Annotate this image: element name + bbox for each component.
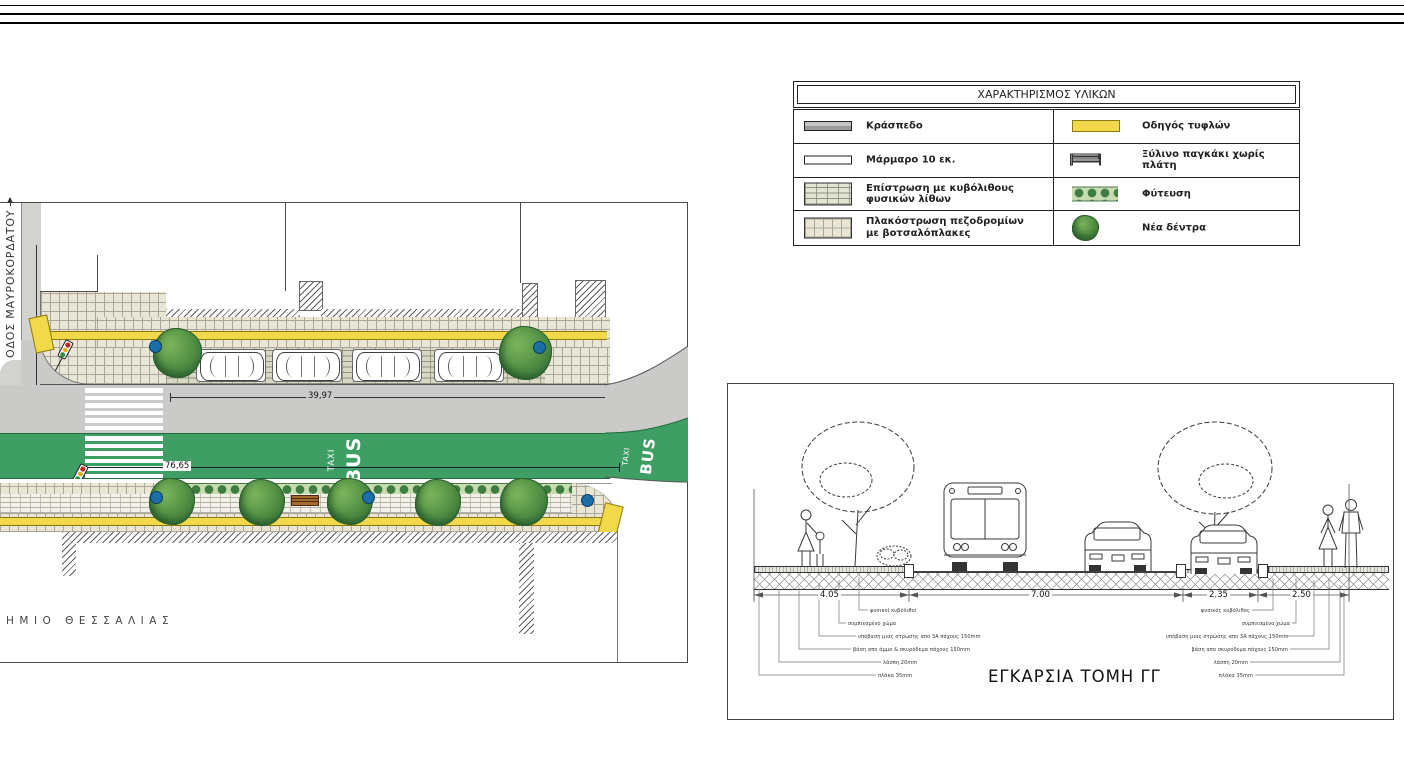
material-callout: υπόβαση μιας στρώσης απο 3Α πάχους 150mm (1166, 634, 1286, 640)
building-wall-hatch (321, 309, 528, 317)
legend-cell: Κράσπεδο (794, 110, 1054, 143)
bollard-light (149, 340, 162, 353)
parked-car (276, 352, 340, 381)
crosswalk-stripe (85, 474, 163, 479)
dim-value: 76,65 (163, 461, 191, 471)
legend-title: ΧΑΡΑΚΤΗΡΙΣΜΟΣ ΥΛΙΚΩΝ (797, 85, 1296, 104)
legend-row: Μάρμαρο 10 εκ. Ξύλινο παγκάκι χωρίς πλάτ… (794, 144, 1299, 178)
dim-value: 39,97 (306, 391, 334, 401)
street-name-label: ΟΔΟΣ ΜΑΥΡΟΚΟΡΔΑΤΟΥ (3, 198, 17, 358)
section-title: ΕΓΚΑΡΣΙΑ ΤΟΜΗ ΓΓ (988, 667, 1161, 686)
sheet-rule-2 (0, 13, 1404, 15)
parked-car (438, 352, 502, 381)
sheet-rule-1 (0, 5, 1404, 6)
material-callout: φυσικοί κυβόλιθοι (870, 608, 917, 614)
material-callout: συμπιεσμένο χώμα (848, 621, 896, 627)
material-callout: πλάκα 35mm (878, 673, 912, 679)
curb-swatch (804, 121, 852, 131)
tree (239, 479, 285, 526)
sidewalk-top-right (544, 348, 610, 384)
legend-table: Κράσπεδο Οδηγός τυφλών Μάρμαρο 10 εκ. Ξύ… (793, 109, 1300, 246)
legend-row: Πλακόστρωση πεζοδρομίων με βοτσαλόπλακες… (794, 211, 1299, 245)
crosswalk-stripe (85, 403, 163, 408)
material-callout: φυσικός κυβόλιθος (1150, 608, 1250, 614)
crosswalk-stripe (85, 388, 163, 393)
building-line (520, 203, 521, 283)
tactile-strip-swatch (1072, 120, 1120, 132)
building-line (617, 532, 618, 662)
building-wall-hatch (519, 543, 534, 634)
drawing-sheet: ΧΑΡΑΚΤΗΡΙΣΜΟΣ ΥΛΙΚΩΝ Κράσπεδο Οδηγός τυφ… (0, 0, 1404, 764)
legend-cell: Πλακόστρωση πεζοδρομίων με βοτσαλόπλακες (794, 211, 1054, 245)
bench-icon (1072, 154, 1099, 167)
street-corner-pavement (0, 360, 22, 386)
legend-label: Μάρμαρο 10 εκ. (866, 155, 956, 166)
section-view: 4.05 7.00 2.35 2.50 φυσικοί κυβόλιθοι συ… (727, 383, 1394, 720)
tree (499, 326, 552, 380)
legend-label: Επίστρωση με κυβόλιθους φυσικών λίθων (866, 183, 1053, 205)
planting-swatch (1072, 186, 1118, 201)
plan-frame-bottom (0, 662, 688, 663)
legend-label: Οδηγός τυφλών (1142, 121, 1230, 132)
dim-value: 2.35 (1207, 590, 1230, 600)
tree (153, 328, 202, 378)
material-callout: συμπιεσμένο χώμα (1190, 621, 1290, 627)
material-callout: υπόβαση μιας στρώσης απο 3Α πάχους 150mm (858, 634, 981, 640)
cobble-walkway (0, 494, 572, 513)
legend-label: Φύτευση (1142, 188, 1191, 199)
curb-line (40, 384, 610, 385)
material-callout: λάσπη 20mm (1148, 660, 1248, 666)
crosswalk-stripe (85, 451, 163, 456)
crosswalk-stripe (85, 459, 163, 464)
parked-car (356, 352, 420, 381)
legend-cell: Ξύλινο παγκάκι χωρίς πλάτη (1054, 144, 1299, 177)
legend-cell: Μάρμαρο 10 εκ. (794, 144, 1054, 177)
dim-line-parking (170, 397, 608, 398)
building-wall-hatch (62, 532, 618, 543)
tree (500, 478, 548, 526)
parked-car (200, 352, 264, 381)
building-wall-hatch (62, 532, 76, 576)
material-callout: λάσπη 20mm (883, 660, 917, 666)
cobblestone-swatch (804, 182, 852, 205)
legend-label: Πλακόστρωση πεζοδρομίων με βοτσαλόπλακες (866, 216, 1024, 240)
dim-tick (170, 393, 171, 402)
bench (291, 495, 319, 506)
dim-value: 4.05 (818, 590, 841, 600)
campus-label: ΗΜΙΟ ΘΕΣΣΑΛΙΑΣ (6, 615, 174, 627)
plan-view: ΟΔΟΣ ΜΑΥΡΟΚΟΡΔΑΤΟΥ (0, 202, 688, 663)
crosswalk-stripe (85, 426, 163, 431)
building-wall-hatch (299, 281, 323, 311)
legend-row: Επίστρωση με κυβόλιθους φυσικών λίθων Φύ… (794, 178, 1299, 212)
legend-cell: Φύτευση (1054, 178, 1299, 211)
legend-cell: Νέα δέντρα (1054, 211, 1299, 245)
bollard-light (150, 491, 163, 504)
material-callout: πλάκα 35mm (1153, 673, 1253, 679)
materials-legend: ΧΑΡΑΚΤΗΡΙΣΜΟΣ ΥΛΙΚΩΝ Κράσπεδο Οδηγός τυφ… (793, 81, 1300, 246)
crosswalk-stripe (85, 444, 163, 449)
dim-value: 2.50 (1290, 590, 1313, 600)
legend-label: Ξύλινο παγκάκι χωρίς πλάτη (1142, 149, 1299, 171)
new-tree-icon (1072, 215, 1099, 241)
legend-cell: Οδηγός τυφλών (1054, 110, 1299, 143)
taxi-lane-marking: TAXI (327, 436, 337, 484)
legend-title-box: ΧΑΡΑΚΤΗΡΙΣΜΟΣ ΥΛΙΚΩΝ (793, 81, 1300, 108)
legend-cell: Επίστρωση με κυβόλιθους φυσικών λίθων (794, 178, 1054, 211)
bollard-light (362, 491, 375, 504)
tree (415, 479, 461, 526)
crosswalk-stripe (85, 411, 163, 416)
bollard-light (533, 341, 546, 354)
legend-label: Νέα δέντρα (1142, 223, 1206, 234)
material-callout: βάση απο άμμο & σκυρόδεμα πάχους 150mm (853, 647, 970, 653)
sheet-rule-3 (0, 22, 1404, 24)
street-direction-arrow (10, 198, 11, 206)
material-callout: βάση απο σκυρόδεμα πάχους 150mm (1178, 647, 1288, 653)
building-line (285, 203, 286, 291)
crosswalk-stripe (85, 418, 163, 423)
plan-frame-top (0, 202, 688, 203)
legend-row: Κράσπεδο Οδηγός τυφλών (794, 110, 1299, 144)
crosswalk-stripe (85, 436, 163, 441)
slab-paving-swatch (804, 218, 852, 239)
dim-value: 7.00 (1029, 590, 1052, 600)
building-line (97, 255, 98, 292)
legend-label: Κράσπεδο (866, 121, 923, 132)
crosswalk-stripe (85, 396, 163, 401)
marble-swatch (804, 156, 852, 165)
bollard-light (581, 494, 594, 507)
